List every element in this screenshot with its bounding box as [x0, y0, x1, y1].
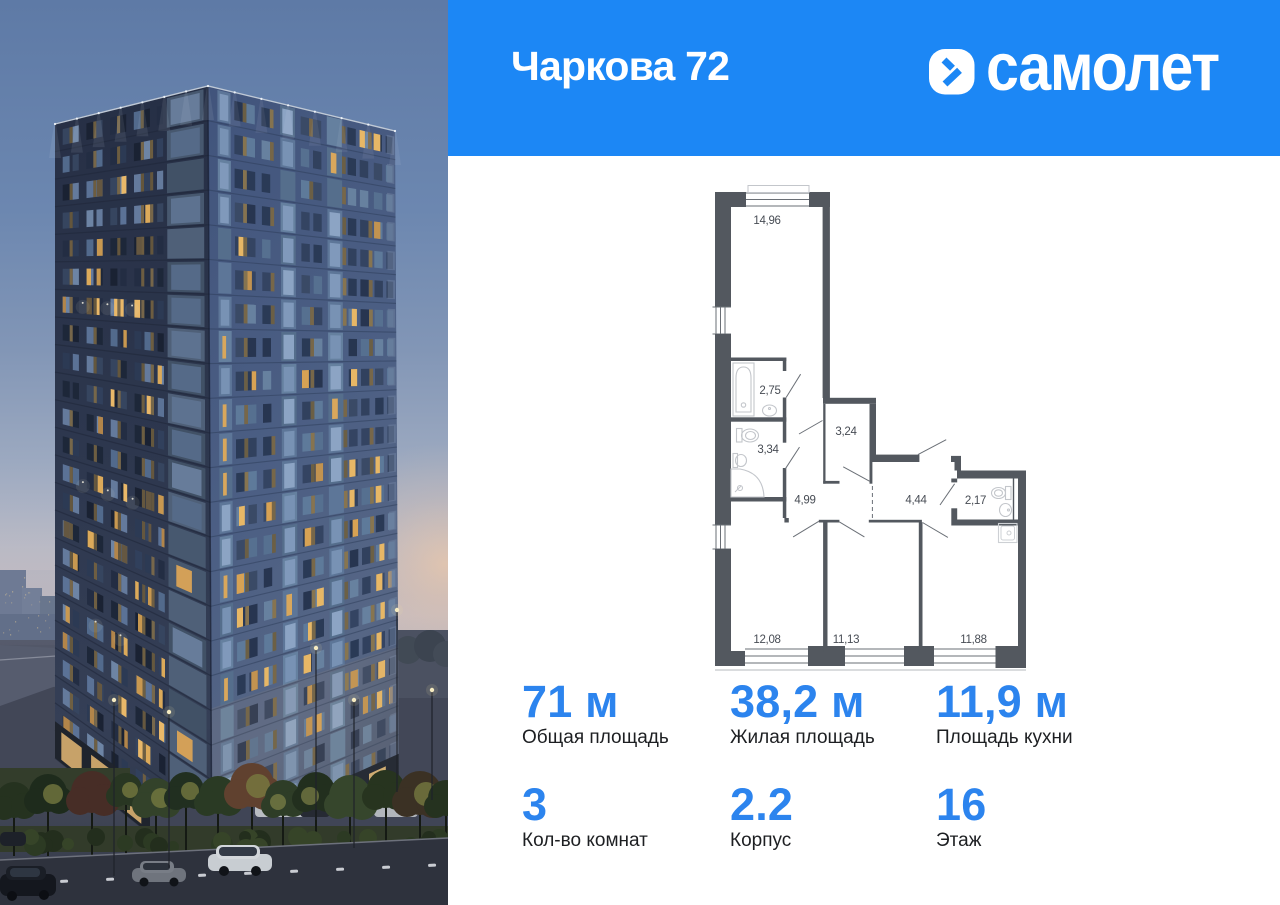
svg-text:4,44: 4,44	[905, 495, 927, 507]
svg-text:11,88: 11,88	[960, 634, 986, 646]
svg-text:14,96: 14,96	[753, 215, 780, 227]
svg-text:3,24: 3,24	[835, 426, 857, 438]
svg-text:2,17: 2,17	[965, 495, 986, 507]
svg-text:12,08: 12,08	[753, 634, 780, 646]
svg-text:4,99: 4,99	[794, 495, 815, 507]
svg-text:11,13: 11,13	[833, 634, 859, 646]
svg-text:3,34: 3,34	[757, 444, 779, 456]
svg-text:2,75: 2,75	[759, 385, 780, 397]
